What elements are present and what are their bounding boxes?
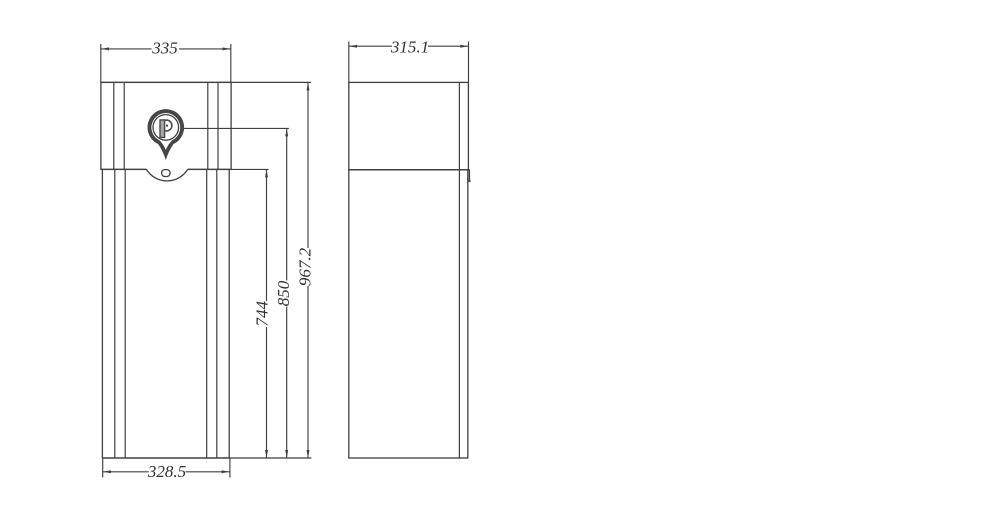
svg-text:744: 744 — [253, 300, 272, 326]
svg-text:967.2: 967.2 — [295, 247, 314, 286]
svg-text:335: 335 — [151, 39, 178, 58]
svg-text:328.5: 328.5 — [147, 462, 186, 481]
svg-text:850: 850 — [274, 280, 293, 306]
svg-text:315.1: 315.1 — [390, 37, 429, 56]
